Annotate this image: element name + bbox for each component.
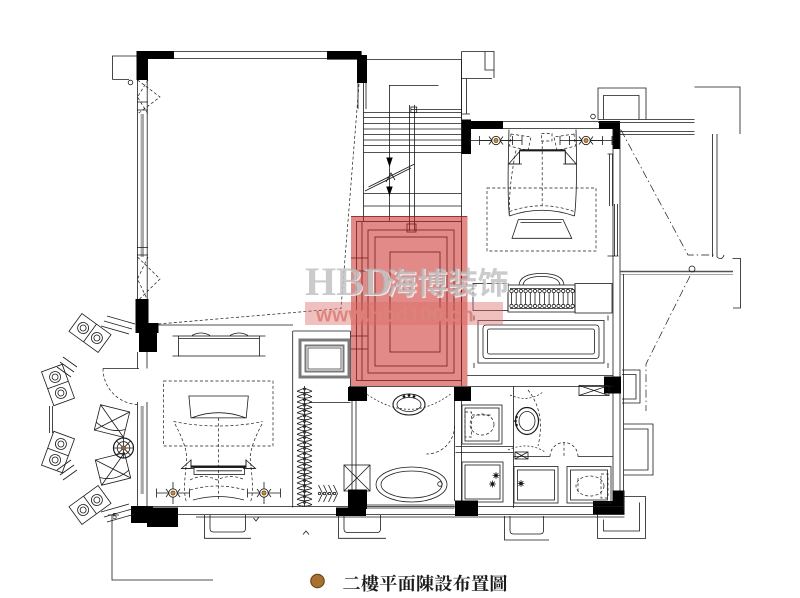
- svg-text:www.hbd100.cn: www.hbd100.cn: [315, 304, 474, 327]
- svg-text:HBD: HBD: [305, 259, 392, 304]
- svg-text:5: 5: [113, 512, 118, 521]
